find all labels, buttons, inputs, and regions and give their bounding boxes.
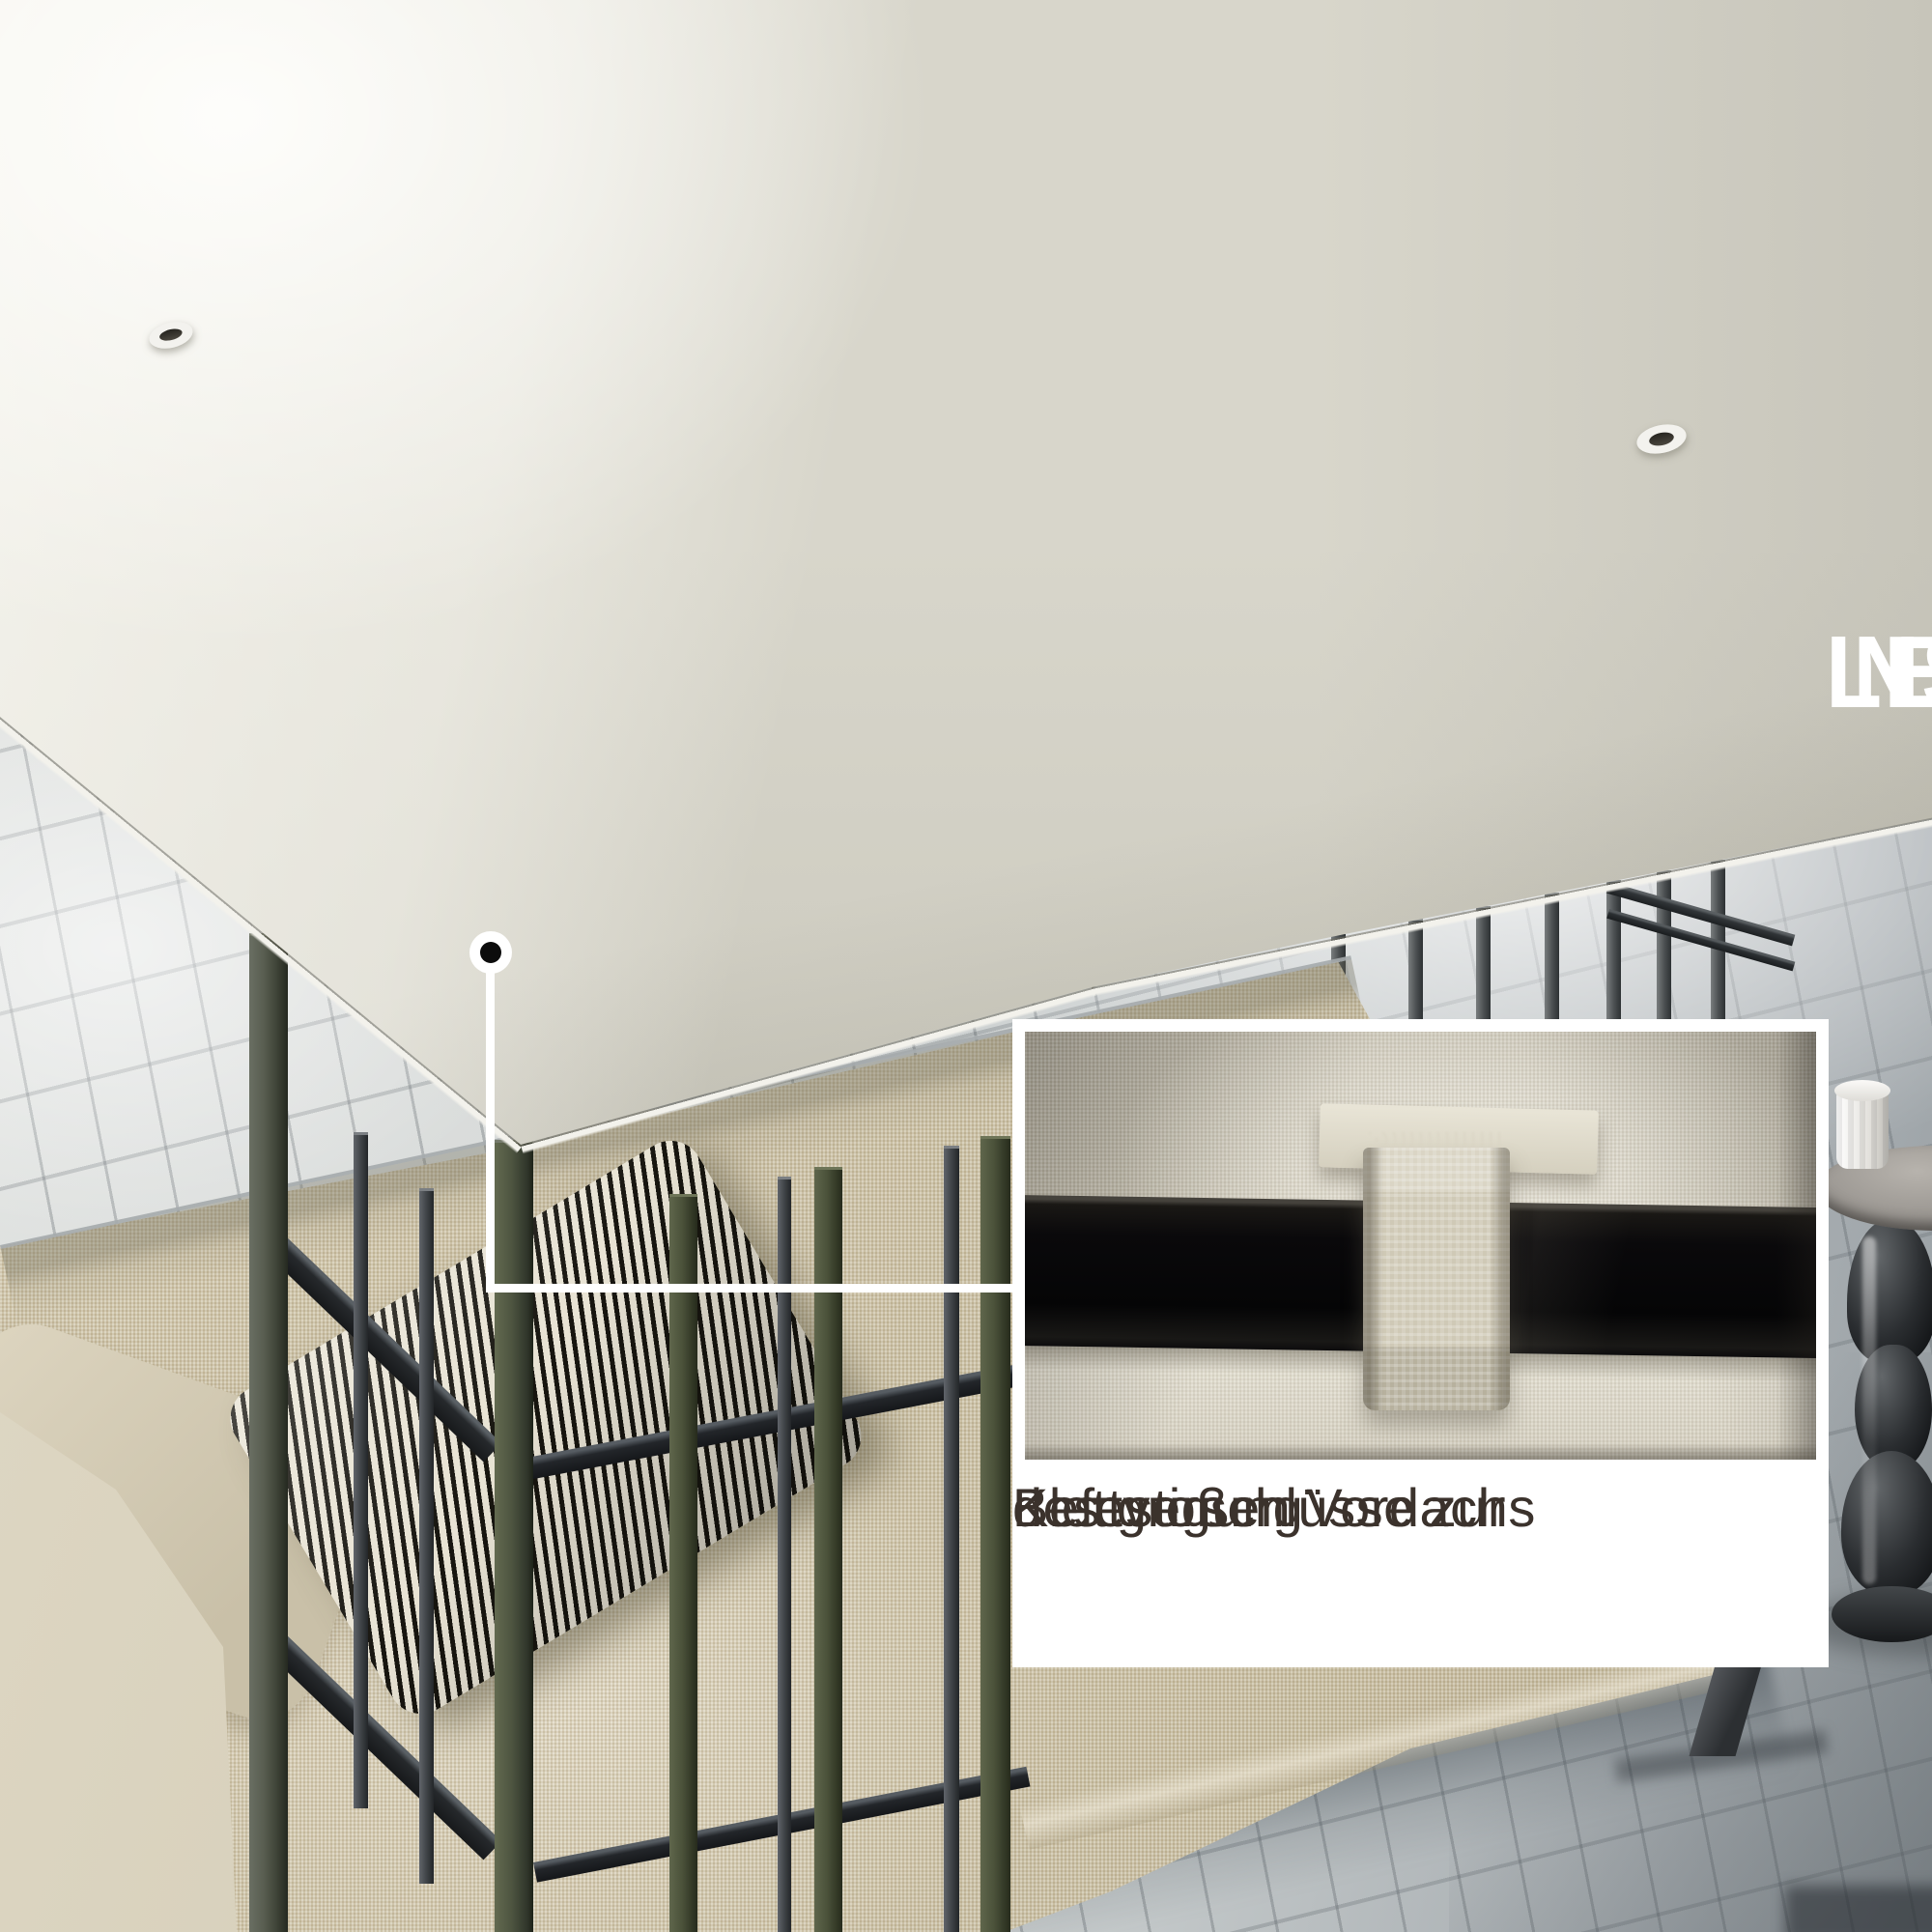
corner-shadow — [1785, 1886, 1932, 1932]
gazebo-rear-bar — [1657, 870, 1671, 1021]
headline-line2: INSTALLIEREN — [1826, 624, 1932, 722]
cup-lid — [1834, 1080, 1890, 1101]
side-table-reflection — [1862, 1236, 1876, 1584]
trellis-baluster-olive — [669, 1194, 697, 1932]
callout-point-core — [480, 942, 501, 963]
gazebo-rear-bar — [1545, 893, 1559, 1021]
gazebo-rear-bar — [1606, 880, 1621, 1021]
trellis-baluster — [419, 1188, 434, 1884]
inset-caption: Klettverschlüsse zur Befestigung des gro… — [1012, 1460, 1829, 1667]
caption-line3: des großen Vordachs — [1012, 1481, 1536, 1535]
photo-bottom-shade — [1025, 1444, 1816, 1460]
gazebo-post-corner — [495, 1140, 533, 1932]
gazebo-rear-bar — [1408, 919, 1423, 1021]
grommet-hole — [158, 327, 184, 342]
trellis-baluster — [354, 1132, 368, 1808]
trellis-baluster-olive — [980, 1136, 1010, 1932]
trellis-baluster-olive — [814, 1167, 842, 1932]
gazebo-post-left — [249, 933, 288, 1932]
grommet-hole — [1648, 430, 1675, 447]
callout-point-icon — [469, 931, 512, 974]
gazebo-rear-bar — [1476, 906, 1491, 1021]
photo-edge-shade — [1025, 1032, 1816, 1460]
callout-line-vertical — [486, 970, 495, 1289]
side-table-pedestal — [1847, 1219, 1932, 1364]
inset-photo-velcro-detail — [1025, 1032, 1816, 1460]
trellis-baluster — [944, 1146, 959, 1932]
gazebo-product-feature-image: LEICHT ZU INSTALLIEREN Klettverschlüsse … — [0, 0, 1932, 1932]
inset-panel: Klettverschlüsse zur Befestigung des gro… — [1012, 1019, 1829, 1667]
callout-line-horizontal — [486, 1284, 1024, 1293]
